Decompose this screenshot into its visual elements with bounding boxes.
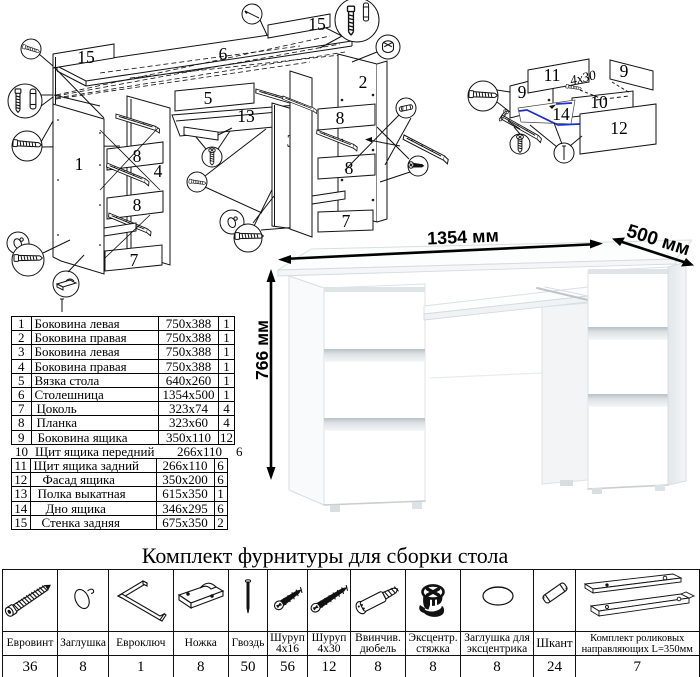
svg-text:9: 9 <box>518 82 527 102</box>
svg-text:11: 11 <box>544 65 561 85</box>
svg-text:7: 7 <box>342 211 351 231</box>
svg-text:1354 мм: 1354 мм <box>427 225 499 248</box>
svg-text:8: 8 <box>336 108 345 128</box>
svg-text:1: 1 <box>75 154 84 174</box>
svg-text:9: 9 <box>620 61 629 81</box>
svg-text:2: 2 <box>359 72 368 92</box>
svg-text:7: 7 <box>130 250 139 270</box>
svg-text:8: 8 <box>133 195 142 215</box>
svg-text:6: 6 <box>219 44 228 64</box>
svg-text:15: 15 <box>77 47 95 67</box>
svg-text:8: 8 <box>345 158 354 178</box>
svg-text:5: 5 <box>204 88 213 108</box>
svg-text:8: 8 <box>133 146 142 166</box>
svg-text:14: 14 <box>552 104 570 124</box>
svg-text:766 мм: 766 мм <box>252 320 272 380</box>
svg-text:15: 15 <box>308 14 326 34</box>
svg-text:12: 12 <box>610 118 628 138</box>
svg-text:13: 13 <box>237 106 255 126</box>
